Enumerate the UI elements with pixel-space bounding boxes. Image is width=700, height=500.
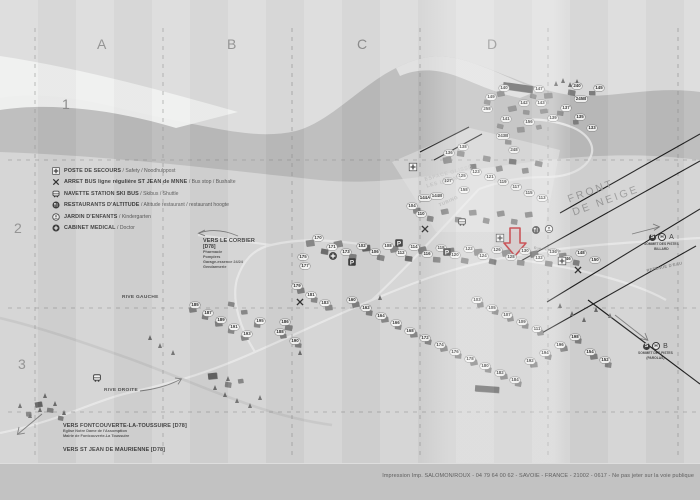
label-rive-droite: RIVE DROITE	[104, 388, 138, 394]
label-vers-fontcouverte: VERS FONTCOUVERTE-LA-TOUSSUIRE [D78] Egl…	[63, 423, 187, 439]
unit-number-badge: 132	[534, 255, 544, 261]
building	[508, 105, 517, 112]
unit-number-badge: 170	[313, 235, 323, 241]
tree-icon	[248, 403, 252, 408]
building	[544, 260, 552, 266]
legend-label-translation: / Altitude restaurant / restaurant hoogt…	[141, 202, 229, 208]
unit-number-badge: 154	[585, 349, 595, 355]
building	[47, 408, 53, 413]
legend-item: RESTAURANTS D'ALTITUDE / Altitude restau…	[52, 200, 236, 212]
building	[572, 120, 577, 124]
unit-number-badge: 182	[495, 370, 505, 376]
unit-number-badge: 164	[376, 313, 386, 319]
tree-icon	[18, 403, 22, 408]
first-aid-icon	[558, 257, 567, 266]
svg-text:P: P	[397, 240, 401, 247]
building	[516, 259, 523, 265]
label-rive-gauche: RIVE GAUCHE	[122, 295, 159, 301]
unit-number-badge: 191	[229, 324, 239, 330]
unit-number-badge: 142	[519, 100, 529, 106]
unit-number-badge: 106	[370, 249, 380, 255]
unit-number-badge: 189	[216, 317, 226, 323]
unit-number-badge: 113	[537, 195, 547, 201]
unit-number-badge: 156	[524, 119, 534, 125]
tree-icon	[28, 413, 32, 418]
unit-number-badge: 110	[416, 211, 426, 217]
corbier-line: Gendarmerie	[203, 265, 255, 270]
summit-caption: SOMMET DES PISTES	[638, 351, 673, 355]
unit-number-badge: 178	[465, 356, 475, 362]
unit-number-badge: 186	[280, 319, 290, 325]
unit-number-badge: 102	[357, 243, 367, 249]
unit-number-badge: 122	[464, 246, 474, 252]
building	[508, 158, 515, 164]
first-aid-icon	[409, 163, 418, 172]
restaurant-icon	[532, 226, 541, 235]
tree-icon	[558, 303, 562, 308]
restaurant-icon	[52, 201, 60, 209]
ski-village-map-scan: POSTE DE SECOURS / Safety / Noodhulppost…	[0, 0, 700, 500]
unit-number-badge: 168	[405, 328, 415, 334]
first-aid-icon	[52, 167, 60, 175]
building	[237, 379, 243, 384]
unit-number-badge: 243B	[496, 133, 509, 139]
unit-number-badge: 105	[487, 305, 497, 311]
building	[225, 381, 232, 387]
unit-number-badge: 173	[341, 249, 351, 255]
building	[511, 218, 518, 224]
unit-number-badge: 190	[290, 338, 300, 344]
legend-label-translation: / Bus stop / Bushalte	[189, 179, 236, 185]
summit-letter: A	[669, 234, 674, 241]
building	[432, 256, 439, 261]
legend-item: ARRET BUS ligne régulière ST JEAN de MNN…	[52, 177, 236, 189]
print-credit: Impression Imp. SALOMON/ROUX - 04 79 64 …	[382, 473, 694, 479]
tree-icon	[235, 398, 239, 403]
building	[496, 210, 504, 216]
building	[306, 239, 315, 246]
legend-label-fr: ARRET BUS ligne régulière ST JEAN de MNN…	[64, 179, 187, 185]
unit-number-badge: 116	[422, 251, 432, 257]
unit-number-badge: 160	[347, 297, 357, 303]
summit-badge-h: H	[658, 233, 666, 241]
unit-number-badge: 198	[570, 334, 580, 340]
unit-number-badge: 240	[572, 83, 582, 89]
unit-number-badge: 124	[478, 253, 488, 259]
unit-number-badge: 181	[306, 292, 316, 298]
building	[573, 259, 580, 265]
building	[534, 160, 542, 166]
tree-icon	[38, 407, 42, 412]
unit-number-badge: 196	[555, 342, 565, 348]
unit-number-badge: 140	[499, 85, 509, 91]
building	[228, 302, 235, 307]
parking-icon: P	[443, 248, 452, 257]
bus-stop-icon	[296, 298, 305, 307]
unit-number-badge: 195	[255, 318, 265, 324]
unit-number-badge: 172	[420, 335, 430, 341]
legend-item: JARDIN D'ENFANTS / Kindergarten	[52, 211, 236, 223]
legend-label-fr: JARDIN D'ENFANTS	[64, 214, 118, 220]
unit-number-badge: 136	[444, 150, 454, 156]
unit-number-badge: 128	[506, 254, 516, 260]
shuttle-icon	[458, 218, 467, 227]
tree-icon	[561, 78, 565, 83]
tree-icon	[43, 393, 47, 398]
shuttle-icon	[93, 374, 102, 383]
legend-label-fr: NAVETTE STATION SKI BUS	[64, 191, 139, 197]
unit-number-badge: 109	[517, 319, 527, 325]
legend-label-translation: / Skibus / Shuttle	[140, 191, 178, 197]
unit-number-badge: 171	[327, 244, 337, 250]
building	[567, 89, 575, 95]
unit-number-badge: 137	[561, 105, 571, 111]
summit-letter: B	[663, 343, 668, 350]
unit-number-badge: 179	[292, 283, 302, 289]
building	[523, 110, 529, 115]
legend-item: CABINET MEDICAL / Doctor	[52, 223, 236, 235]
tree-icon	[608, 313, 612, 318]
unit-number-badge: 145	[594, 85, 604, 91]
summit-badge-s: S	[643, 343, 650, 350]
unit-number-badge: 158	[459, 187, 469, 193]
building	[524, 211, 532, 217]
building	[516, 126, 523, 132]
unit-number-badge: 245B	[574, 96, 587, 102]
tree-icon	[378, 295, 382, 300]
unit-number-badge: 117	[511, 184, 521, 190]
bus-stop-icon	[52, 178, 60, 186]
kindergarten-icon	[545, 225, 554, 234]
unit-number-badge: 119	[498, 179, 508, 185]
tree-icon	[582, 317, 586, 322]
unit-number-badge: 183	[320, 300, 330, 306]
parking-icon: P	[395, 239, 404, 248]
tree-icon	[223, 392, 227, 397]
unit-number-badge: 130	[520, 248, 530, 254]
summit-subcaption: BILLARD	[644, 247, 679, 251]
summit-badge-s: S	[649, 234, 656, 241]
summit-badge-h: H	[652, 342, 660, 350]
unit-number-badge: 162	[361, 305, 371, 311]
unit-number-badge: 107	[502, 312, 512, 318]
legend-label-fr: RESTAURANTS D'ALTITUDE	[64, 202, 139, 208]
building	[427, 215, 434, 221]
unit-number-badge: 175	[298, 254, 308, 260]
unit-number-badge: 112	[396, 250, 406, 256]
unit-number-badge: 192	[525, 358, 535, 364]
building	[589, 91, 595, 95]
summit-label-a: S H A SOMMET DES PISTES BILLARD	[644, 233, 679, 251]
bus-stop-icon	[421, 225, 430, 234]
tree-icon	[226, 376, 230, 381]
building	[460, 257, 468, 263]
unit-number-badge: 141	[501, 116, 511, 122]
legend-label-fr: CABINET MEDICAL	[64, 225, 116, 231]
unit-number-badge: 138	[458, 144, 468, 150]
unit-number-badge: 152	[600, 357, 610, 363]
unit-number-badge: 111	[532, 326, 541, 332]
unit-number-badge: 120	[450, 252, 460, 258]
unit-number-badge: 147	[534, 86, 544, 92]
svg-text:P: P	[350, 259, 354, 266]
unit-number-badge: 104	[407, 203, 417, 209]
legend-label-fr: POSTE DE SECOURS	[64, 168, 121, 174]
unit-number-badge: 258	[482, 106, 492, 112]
unit-number-badge: 135	[575, 114, 585, 120]
summit-subcaption: (PAROLAS)	[638, 356, 673, 360]
building	[557, 111, 563, 116]
unit-number-badge: 185	[190, 302, 200, 308]
tree-icon	[594, 307, 598, 312]
legend-item: NAVETTE STATION SKI BUS / Skibus / Shutt…	[52, 188, 236, 200]
tree-icon	[171, 350, 175, 355]
legend-item: POSTE DE SECOURS / Safety / Noodhulppost	[52, 165, 236, 177]
stjean-title: VERS ST JEAN DE MAURIENNE [D78]	[63, 447, 165, 453]
unit-number-badge: 176	[450, 349, 460, 355]
tree-icon	[148, 335, 152, 340]
building	[468, 209, 475, 215]
unit-number-badge: 139	[548, 115, 558, 121]
building	[241, 310, 247, 315]
unit-number-badge: 108	[383, 243, 393, 249]
unit-number-badge: 174	[435, 342, 445, 348]
first-aid-icon	[496, 234, 505, 243]
unit-number-badge: 184	[510, 377, 520, 383]
footer-strip: Impression Imp. SALOMON/ROUX - 04 79 64 …	[0, 463, 700, 500]
shuttle-icon	[52, 190, 60, 198]
unit-number-badge: 103	[472, 297, 482, 303]
unit-number-badge: 194	[540, 350, 550, 356]
unit-number-badge: 114	[409, 244, 419, 250]
medical-icon	[52, 224, 60, 232]
tree-icon	[53, 401, 57, 406]
unit-number-badge: 177	[300, 263, 310, 269]
building	[482, 155, 490, 161]
tree-icon	[570, 311, 574, 316]
unit-number-badge: 149	[486, 94, 496, 100]
building	[488, 258, 496, 264]
bus-stop-icon	[574, 266, 583, 275]
legend-label-translation: / Kindergarten	[119, 214, 151, 220]
legend-label-translation: / Safety / Noodhulppost	[123, 168, 176, 174]
unit-number-badge: 115	[524, 190, 534, 196]
tree-icon	[213, 385, 217, 390]
unit-number-badge: 193	[242, 331, 252, 337]
unit-number-badge: 133	[587, 125, 597, 131]
unit-number-badge: 126	[492, 247, 502, 253]
building	[544, 92, 552, 98]
tree-icon	[158, 343, 162, 348]
building	[404, 255, 412, 261]
unit-number-badge: 166	[391, 320, 401, 326]
parking-icon: P	[348, 258, 357, 267]
label-vers-le-corbier: VERS LE CORBIER [D78] Pharmacie Pompiers…	[203, 238, 255, 270]
building	[207, 373, 217, 380]
unit-number-badge: 248	[509, 147, 519, 153]
unit-number-badge: 188	[275, 329, 285, 335]
unit-number-badge: 144B	[430, 193, 443, 199]
tree-icon	[62, 410, 66, 415]
building	[539, 109, 546, 114]
unit-number-badge: 143	[536, 100, 546, 106]
tree-icon	[554, 81, 558, 86]
unit-number-badge: 187	[203, 310, 213, 316]
unit-number-badge: 180	[480, 363, 490, 369]
legend-label-translation: / Doctor	[117, 225, 135, 231]
building	[57, 416, 63, 421]
building	[522, 167, 529, 173]
building	[505, 140, 511, 144]
tree-icon	[298, 350, 302, 355]
summit-caption: SOMMET DES PISTES	[644, 242, 679, 246]
building	[483, 217, 490, 223]
kindergarten-icon	[52, 213, 60, 221]
legend: POSTE DE SECOURS / Safety / Noodhulppost…	[52, 165, 236, 234]
label-vers-st-jean: VERS ST JEAN DE MAURIENNE [D78]	[63, 447, 165, 453]
medical-icon	[329, 252, 338, 261]
summit-label-b: S H B SOMMET DES PISTES (PAROLAS)	[638, 342, 673, 360]
unit-number-badge: 121	[485, 174, 495, 180]
building	[496, 165, 503, 171]
building	[456, 150, 464, 156]
tree-icon	[258, 395, 262, 400]
unit-number-badge: 148	[576, 250, 586, 256]
building	[440, 208, 448, 214]
svg-text:P: P	[445, 249, 449, 256]
unit-number-badge: 150	[590, 257, 600, 263]
fontcouverte-line: Mairie de Fontcouverte-La Toussuire	[63, 434, 187, 439]
